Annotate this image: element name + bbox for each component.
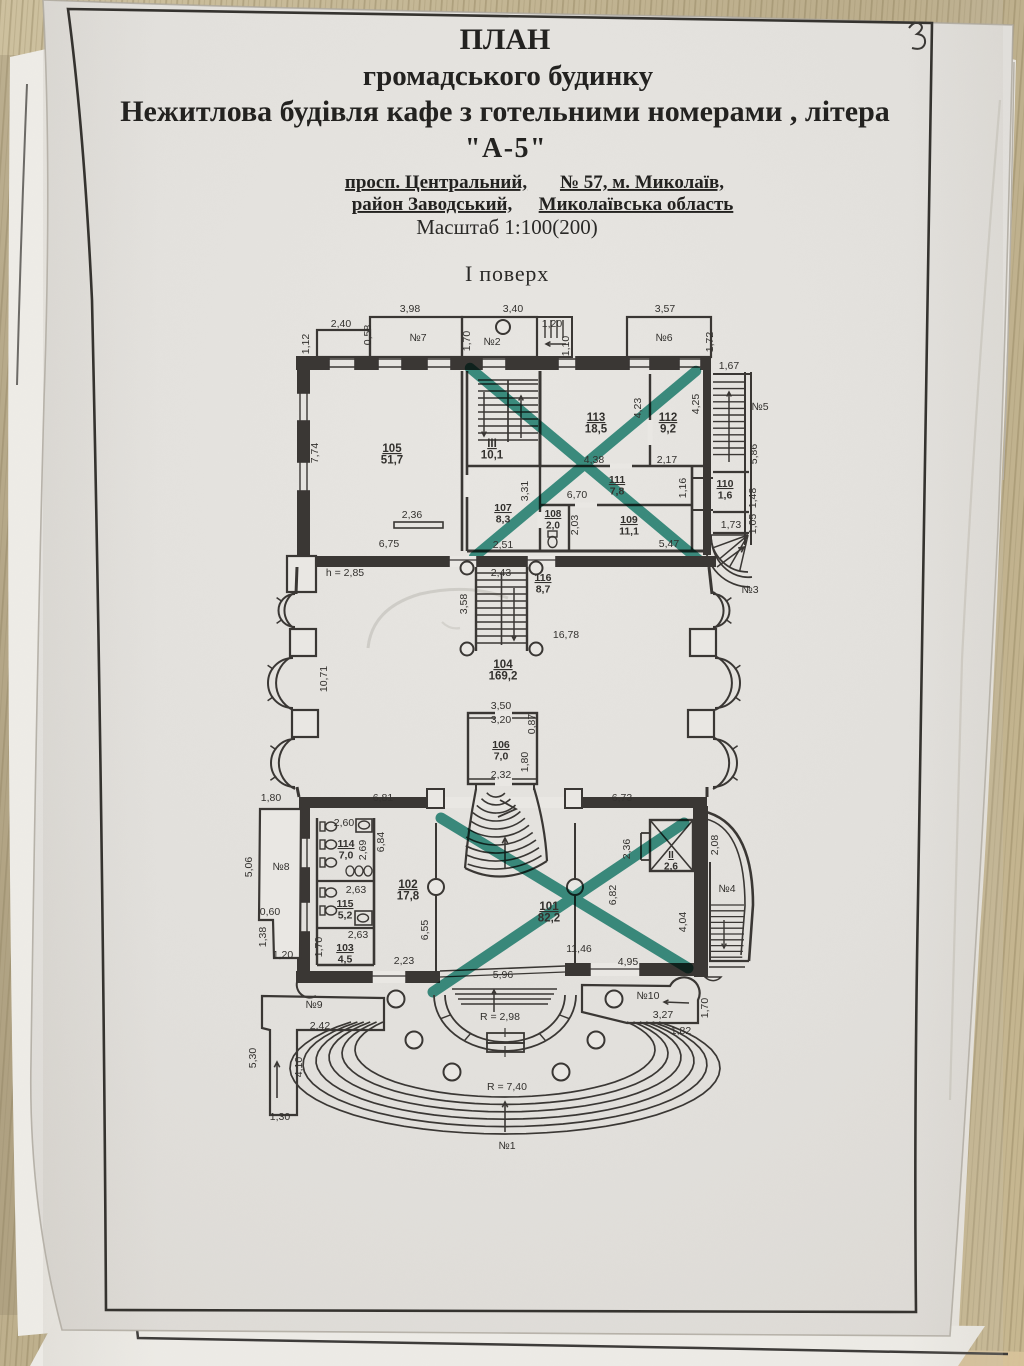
svg-text:громадського будинку: громадського будинку — [363, 60, 654, 92]
svg-text:№1: №1 — [498, 1140, 515, 1152]
svg-text:2,63: 2,63 — [348, 929, 369, 941]
svg-text:4,23: 4,23 — [632, 398, 644, 419]
svg-text:"А-5": "А-5" — [465, 133, 547, 164]
svg-text:112: 112 — [659, 412, 678, 424]
svg-text:1,38: 1,38 — [257, 927, 269, 948]
svg-text:0,87: 0,87 — [526, 714, 538, 735]
svg-text:1,12: 1,12 — [300, 334, 312, 355]
svg-text:3,27: 3,27 — [653, 1009, 674, 1021]
svg-text:1,70: 1,70 — [461, 331, 473, 352]
svg-text:h = 2,85: h = 2,85 — [326, 567, 364, 579]
svg-text:6,55: 6,55 — [419, 920, 431, 941]
svg-text:4,95: 4,95 — [618, 956, 639, 968]
svg-text:1,70: 1,70 — [699, 998, 711, 1019]
svg-text:113: 113 — [587, 412, 606, 424]
svg-text:82,2: 82,2 — [538, 913, 560, 925]
svg-text:106: 106 — [492, 739, 510, 751]
svg-text:№10: №10 — [637, 990, 660, 1002]
svg-text:114: 114 — [338, 838, 355, 850]
svg-text:8,3: 8,3 — [496, 514, 511, 526]
svg-text:№4: №4 — [718, 883, 735, 895]
svg-text:9,2: 9,2 — [660, 424, 676, 436]
svg-text:просп. Центральний,: просп. Центральний, — [345, 172, 527, 193]
svg-text:2,69: 2,69 — [357, 840, 369, 861]
svg-text:116: 116 — [535, 572, 552, 584]
svg-text:1,80: 1,80 — [519, 752, 531, 773]
svg-text:1,20: 1,20 — [273, 949, 294, 961]
svg-text:2,36: 2,36 — [621, 839, 633, 860]
svg-text:2,51: 2,51 — [493, 539, 514, 551]
svg-text:1,30: 1,30 — [270, 1111, 291, 1123]
svg-text:2,32: 2,32 — [491, 769, 512, 781]
svg-text:№2: №2 — [483, 336, 500, 348]
svg-text:4,38: 4,38 — [584, 454, 605, 466]
svg-text:1,82: 1,82 — [671, 1025, 692, 1037]
svg-text:115: 115 — [337, 898, 354, 910]
svg-text:2,40: 2,40 — [331, 318, 352, 330]
svg-text:6,84: 6,84 — [375, 832, 387, 853]
svg-text:110: 110 — [717, 478, 734, 490]
svg-text:7,0: 7,0 — [494, 751, 509, 763]
svg-text:1,72: 1,72 — [704, 332, 716, 353]
svg-text:0,58: 0,58 — [362, 325, 374, 346]
svg-text:3,20: 3,20 — [491, 714, 512, 726]
svg-text:2,03: 2,03 — [569, 515, 581, 536]
svg-text:1,16: 1,16 — [677, 478, 689, 499]
svg-text:8,7: 8,7 — [536, 584, 551, 596]
svg-text:І поверх: І поверх — [465, 261, 549, 286]
svg-text:2,63: 2,63 — [346, 884, 367, 896]
svg-text:5,30: 5,30 — [247, 1048, 259, 1069]
svg-text:2,43: 2,43 — [491, 567, 512, 579]
svg-text:104: 104 — [493, 659, 513, 671]
svg-text:5,96: 5,96 — [493, 969, 514, 981]
svg-text:2,23: 2,23 — [394, 955, 415, 967]
svg-text:6,82: 6,82 — [607, 885, 619, 906]
svg-text:II: II — [668, 850, 674, 861]
svg-text:101: 101 — [539, 901, 559, 913]
svg-text:4,25: 4,25 — [690, 394, 702, 415]
svg-text:107: 107 — [494, 502, 512, 514]
svg-text:5,06: 5,06 — [243, 857, 255, 878]
svg-text:1,6: 1,6 — [718, 490, 733, 502]
svg-text:102: 102 — [398, 879, 417, 891]
svg-text:169,2: 169,2 — [489, 671, 518, 683]
svg-text:16,78: 16,78 — [553, 629, 579, 641]
svg-text:103: 103 — [336, 942, 354, 954]
svg-text:ПЛАН: ПЛАН — [460, 23, 551, 56]
svg-text:3,50: 3,50 — [491, 700, 512, 712]
svg-text:2,42: 2,42 — [310, 1020, 331, 1032]
svg-text:№ 57, м. Миколаїв,: № 57, м. Миколаїв, — [560, 172, 724, 193]
svg-text:5,47: 5,47 — [659, 538, 680, 550]
svg-text:6,73: 6,73 — [612, 792, 633, 804]
svg-text:1,48: 1,48 — [747, 488, 759, 509]
svg-text:1,80: 1,80 — [261, 792, 282, 804]
svg-text:3,98: 3,98 — [400, 303, 421, 315]
svg-text:11,1: 11,1 — [619, 526, 639, 538]
svg-text:район Заводський,: район Заводський, — [352, 194, 513, 215]
svg-text:11,46: 11,46 — [566, 943, 592, 955]
svg-text:Миколаївська область: Миколаївська область — [539, 194, 734, 215]
svg-text:Нежитлова будівля кафе з готел: Нежитлова будівля кафе з готельними номе… — [120, 95, 890, 128]
svg-text:6,70: 6,70 — [567, 489, 588, 501]
svg-text:5,86: 5,86 — [748, 444, 760, 465]
svg-text:7,74: 7,74 — [309, 443, 321, 464]
svg-text:4,5: 4,5 — [338, 954, 353, 966]
svg-text:2,36: 2,36 — [402, 509, 423, 521]
svg-text:R = 2,98: R = 2,98 — [480, 1011, 520, 1023]
svg-text:108: 108 — [545, 509, 562, 520]
svg-text:3,57: 3,57 — [655, 303, 676, 315]
svg-text:Масштаб 1:100(200): Масштаб 1:100(200) — [416, 215, 598, 239]
svg-text:№6: №6 — [655, 332, 672, 344]
svg-text:2,0: 2,0 — [546, 521, 560, 532]
svg-text:10,1: 10,1 — [481, 450, 504, 462]
svg-text:1,70: 1,70 — [313, 937, 325, 958]
svg-text:2,6: 2,6 — [664, 862, 678, 873]
svg-text:№3: №3 — [741, 584, 758, 596]
svg-text:2,08: 2,08 — [709, 835, 721, 856]
svg-text:17,8: 17,8 — [397, 891, 420, 903]
svg-text:18,5: 18,5 — [585, 424, 608, 436]
svg-text:51,7: 51,7 — [381, 455, 403, 467]
svg-text:1,05: 1,05 — [747, 514, 759, 535]
svg-text:III: III — [487, 438, 497, 450]
svg-text:111: 111 — [609, 474, 626, 486]
svg-text:7,0: 7,0 — [339, 850, 354, 862]
svg-text:№8: №8 — [272, 861, 289, 873]
svg-text:5,2: 5,2 — [338, 910, 353, 922]
svg-text:4,10: 4,10 — [293, 1057, 305, 1078]
svg-text:2,17: 2,17 — [657, 454, 678, 466]
svg-text:10,71: 10,71 — [318, 666, 330, 692]
svg-text:№9: №9 — [305, 999, 322, 1011]
svg-text:№5: №5 — [751, 401, 768, 413]
svg-text:R = 7,40: R = 7,40 — [487, 1081, 527, 1093]
svg-text:1,10: 1,10 — [560, 336, 572, 357]
svg-text:109: 109 — [620, 514, 638, 526]
svg-text:6,81: 6,81 — [373, 792, 394, 804]
svg-text:№7: №7 — [409, 332, 426, 344]
svg-text:1,73: 1,73 — [721, 519, 742, 531]
svg-text:2,60: 2,60 — [334, 817, 355, 829]
svg-text:3,58: 3,58 — [458, 594, 470, 615]
svg-text:3,31: 3,31 — [519, 481, 531, 502]
svg-text:1,20: 1,20 — [542, 318, 563, 330]
svg-text:4,04: 4,04 — [677, 912, 689, 933]
svg-text:6,75: 6,75 — [379, 538, 400, 550]
svg-text:0,60: 0,60 — [260, 906, 281, 918]
svg-text:3,40: 3,40 — [503, 303, 524, 315]
svg-text:105: 105 — [382, 443, 402, 455]
svg-text:1,67: 1,67 — [719, 360, 740, 372]
svg-text:7,8: 7,8 — [610, 486, 625, 498]
